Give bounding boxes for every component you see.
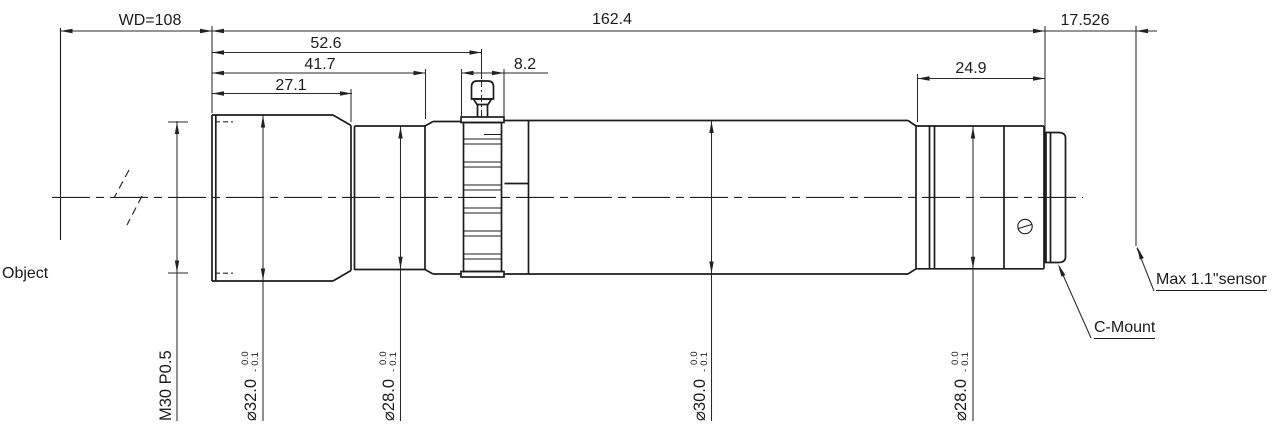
- tolerance-stack: 0.0 - 0.1: [378, 351, 399, 372]
- tolerance-lower: - 0.1: [251, 351, 262, 372]
- dim-overall-length: 162.4: [592, 11, 632, 28]
- dimension-lines: [61, 26, 1158, 421]
- thread-value: M30 P0.5: [157, 350, 176, 421]
- tolerance-upper: 0.0: [378, 351, 389, 365]
- drawing-linework: [0, 0, 1288, 429]
- diameter-28-front-label: ⌀28.0 0.0 - 0.1: [378, 351, 400, 421]
- diameter-value: ⌀30.0: [690, 379, 710, 421]
- tolerance-lower: - 0.1: [961, 351, 972, 372]
- object-label: Object: [2, 265, 48, 283]
- tolerance-stack: 0.0 - 0.1: [241, 351, 262, 372]
- diameter-32-label: ⌀32.0 0.0 - 0.1: [240, 351, 262, 421]
- dim-lock-ring-width: 8.2: [514, 56, 536, 73]
- tolerance-upper: 0.0: [689, 351, 700, 365]
- lock-knob: [472, 81, 494, 118]
- dim-front-barrel: 27.1: [275, 77, 306, 94]
- tolerance-stack: 0.0 - 0.1: [951, 351, 972, 372]
- dim-front-to-step: 41.7: [304, 56, 335, 73]
- tolerance-lower: - 0.1: [389, 351, 400, 372]
- set-screw-icon: [1018, 219, 1032, 233]
- diameter-value: ⌀28.0: [951, 379, 971, 421]
- dim-front-to-lock: 52.6: [310, 35, 341, 52]
- lens-body-outline: [212, 115, 1044, 281]
- sensor-label: Max 1.1"sensor: [1156, 271, 1267, 291]
- thread-label: M30 P0.5: [155, 350, 177, 421]
- diameter-value: ⌀28.0: [379, 379, 399, 421]
- diameter-30-label: ⌀30.0 0.0 - 0.1: [689, 351, 711, 421]
- diameter-28-rear-label: ⌀28.0 0.0 - 0.1: [950, 351, 972, 421]
- dim-rear-section: 24.9: [955, 60, 986, 77]
- dim-flange-distance: 17.526: [1061, 12, 1110, 29]
- tolerance-lower: - 0.1: [700, 351, 711, 372]
- c-mount-label: C-Mount: [1094, 319, 1155, 339]
- lens-dimension-drawing: WD=108 162.4 17.526 52.6 41.7 27.1 8.2 2…: [0, 0, 1288, 429]
- diameter-value: ⌀32.0: [241, 379, 261, 421]
- tolerance-stack: 0.0 - 0.1: [689, 351, 710, 372]
- dim-working-distance: WD=108: [119, 12, 182, 29]
